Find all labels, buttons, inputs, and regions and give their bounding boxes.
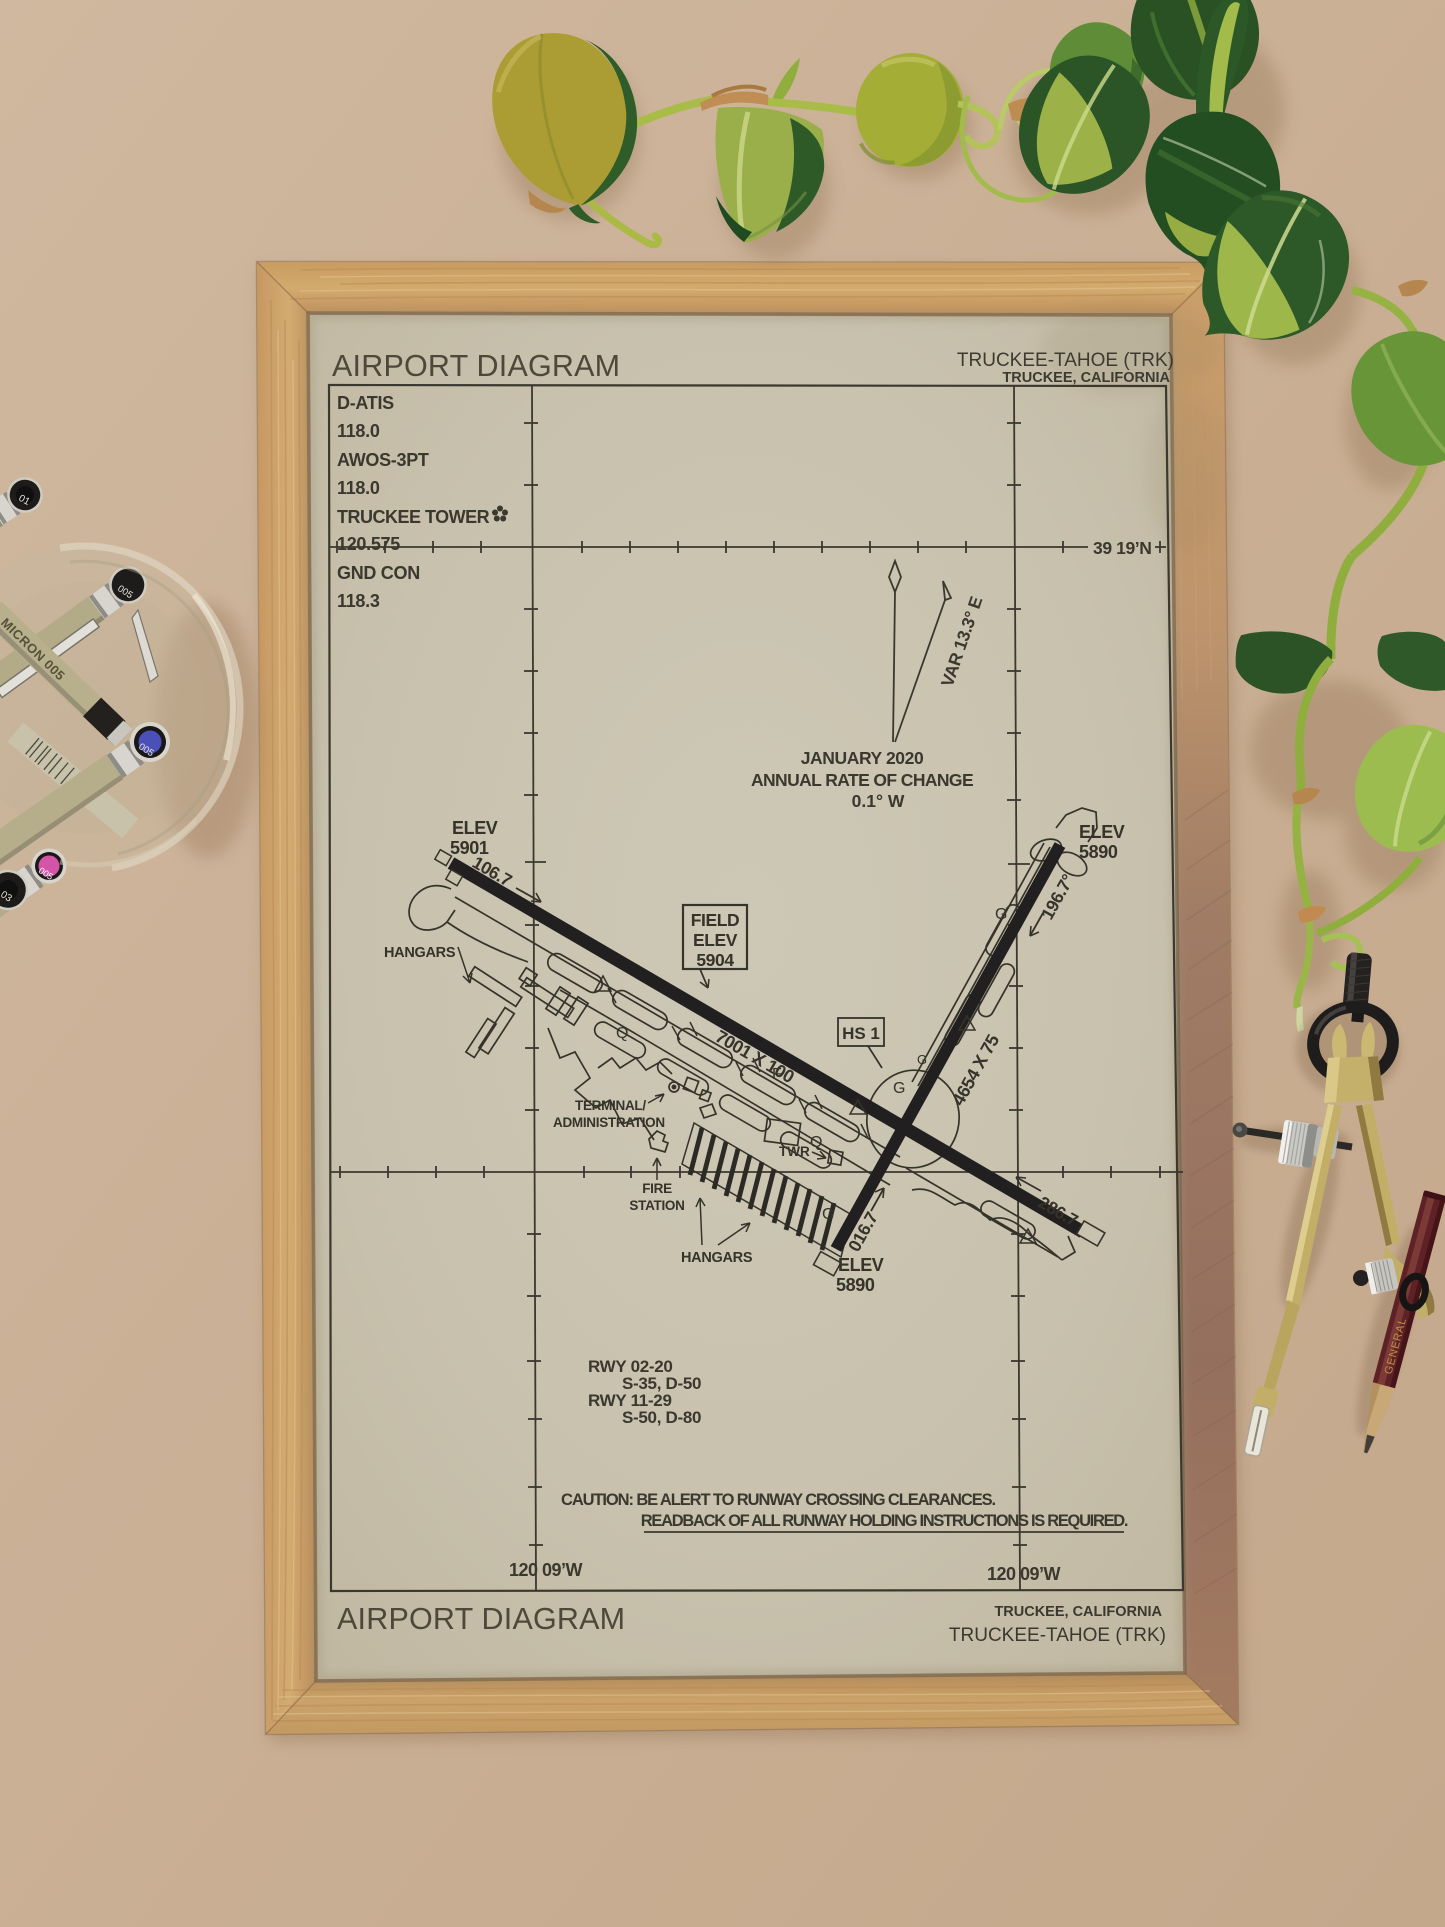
svg-text:ELEV: ELEV <box>1079 822 1125 842</box>
svg-text:ELEV: ELEV <box>693 930 738 950</box>
svg-text:5901: 5901 <box>450 838 489 858</box>
svg-text:F: F <box>772 1066 782 1083</box>
svg-text:AWOS-3PT: AWOS-3PT <box>337 450 429 470</box>
svg-text:G: G <box>893 1080 905 1097</box>
svg-text:TRUCKEE, CALIFORNIA: TRUCKEE, CALIFORNIA <box>994 1604 1162 1620</box>
svg-text:D-ATIS: D-ATIS <box>337 393 394 413</box>
svg-text:ANNUAL RATE OF CHANGE: ANNUAL RATE OF CHANGE <box>751 770 973 790</box>
svg-text:39 19’N: 39 19’N <box>1093 538 1152 558</box>
svg-text:STATION: STATION <box>629 1198 684 1213</box>
svg-text:HANGARS: HANGARS <box>384 945 456 961</box>
svg-text:AIRPORT DIAGRAM: AIRPORT DIAGRAM <box>337 1602 625 1636</box>
svg-text:AIRPORT DIAGRAM: AIRPORT DIAGRAM <box>332 349 620 383</box>
svg-text:FIRE: FIRE <box>642 1181 672 1196</box>
svg-text:5890: 5890 <box>836 1275 875 1295</box>
svg-text:120 09’W: 120 09’W <box>509 1560 583 1580</box>
svg-text:READBACK OF ALL RUNWAY HOLDING: READBACK OF ALL RUNWAY HOLDING INSTRUCTI… <box>641 1512 1128 1530</box>
svg-text:TERMINAL/: TERMINAL/ <box>575 1098 646 1113</box>
svg-text:TRUCKEE-TAHOE (TRK): TRUCKEE-TAHOE (TRK) <box>949 1625 1166 1646</box>
svg-text:TWR: TWR <box>779 1144 810 1159</box>
svg-text:JANUARY 2020: JANUARY 2020 <box>801 748 924 768</box>
svg-text:TRUCKEE TOWER: TRUCKEE TOWER <box>337 507 490 527</box>
svg-text:ELEV: ELEV <box>838 1255 884 1275</box>
svg-text:Q: Q <box>616 1025 628 1042</box>
svg-text:0.1° W: 0.1° W <box>852 791 905 811</box>
svg-text:CAUTION: BE ALERT TO RUNWAY CR: CAUTION: BE ALERT TO RUNWAY CROSSING CLE… <box>561 1491 995 1509</box>
svg-text:Q: Q <box>810 1134 822 1151</box>
svg-text:5890: 5890 <box>1079 842 1118 862</box>
svg-text:ADMINISTRATION: ADMINISTRATION <box>553 1115 665 1130</box>
svg-text:118.3: 118.3 <box>337 591 380 611</box>
svg-text:5904: 5904 <box>696 950 734 970</box>
svg-text:S-50, D-80: S-50, D-80 <box>622 1408 701 1427</box>
svg-text:HANGARS: HANGARS <box>681 1250 753 1266</box>
svg-text:120.575: 120.575 <box>337 534 400 554</box>
svg-text:120 09’W: 120 09’W <box>987 1564 1061 1584</box>
svg-text:G: G <box>822 1206 834 1223</box>
svg-text:G: G <box>995 906 1007 923</box>
svg-text:118.0: 118.0 <box>337 421 380 441</box>
svg-text:GND CON: GND CON <box>337 563 420 583</box>
svg-text:TRUCKEE-TAHOE (TRK): TRUCKEE-TAHOE (TRK) <box>957 350 1174 371</box>
svg-text:TRUCKEE, CALIFORNIA: TRUCKEE, CALIFORNIA <box>1002 370 1170 386</box>
svg-text:HS 1: HS 1 <box>842 1024 880 1043</box>
svg-text:ELEV: ELEV <box>452 818 498 838</box>
svg-text:G: G <box>917 1052 927 1067</box>
svg-text:118.0: 118.0 <box>337 478 380 498</box>
svg-text:FIELD: FIELD <box>691 910 740 930</box>
